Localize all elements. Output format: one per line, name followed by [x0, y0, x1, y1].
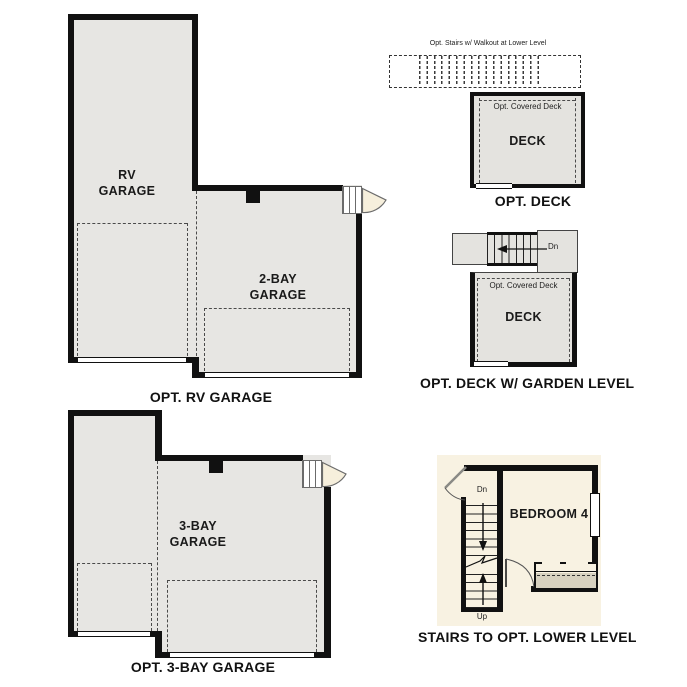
two-bay-garage-label: 2-BAY GARAGE [238, 272, 318, 303]
wall [464, 465, 598, 471]
plan-caption: OPT. DECK W/ GARDEN LEVEL [420, 375, 620, 391]
rv-parking-dashed [77, 223, 78, 361]
covered-deck-dashed [479, 100, 575, 101]
entry-steps [302, 460, 322, 488]
parking-dashed [167, 580, 316, 581]
wall [192, 185, 343, 191]
rv-parking-dashed [77, 223, 187, 224]
wall [68, 14, 198, 20]
closet-rod-dashed [537, 575, 595, 576]
bay2-parking-dashed [349, 308, 350, 376]
covered-deck-label: Opt. Covered Deck [470, 282, 577, 291]
garage-door [78, 357, 186, 363]
deck-door [474, 361, 508, 367]
optional-stairs [389, 55, 581, 88]
garage-floor [68, 410, 162, 637]
garage-door [170, 652, 314, 658]
closet-door-gap [542, 562, 560, 565]
bedroom-label: BEDROOM 4 [499, 507, 599, 523]
covered-deck-dashed [477, 278, 569, 279]
parking-dashed [316, 580, 317, 652]
closet [534, 562, 598, 590]
wall [68, 631, 78, 637]
closet-shelf [536, 571, 596, 572]
covered-deck-label: Opt. Covered Deck [470, 103, 585, 112]
wall [356, 213, 362, 378]
wall [192, 357, 199, 378]
dn-label: Dn [548, 243, 568, 252]
wall [162, 652, 170, 658]
entry-door-swing-icon [362, 186, 389, 215]
parking-dashed [77, 563, 151, 564]
plan-caption: OPT. DECK [453, 193, 613, 209]
stair-landing [452, 233, 488, 265]
plan-caption: STAIRS TO OPT. LOWER LEVEL [418, 629, 618, 645]
garage-door [205, 372, 349, 378]
floorplan-options-sheet: RV GARAGE 2-BAY GARAGE OPT. RV GARAGE Op… [0, 0, 687, 687]
wall [324, 487, 331, 658]
column [246, 191, 260, 203]
wall [68, 410, 162, 416]
three-bay-garage-label: 3-BAY GARAGE [158, 519, 238, 550]
stairs-note: Opt. Stairs w/ Walkout at Lower Level [378, 40, 598, 48]
up-label: Up [464, 613, 500, 622]
dn-label: Dn [464, 486, 500, 495]
wall [155, 631, 162, 658]
wall [68, 357, 78, 363]
deck-door [476, 183, 512, 189]
parking-dashed [151, 563, 152, 631]
plan-caption: OPT. 3-BAY GARAGE [123, 659, 283, 675]
down-arrow-icon [478, 502, 488, 552]
entry-steps [342, 186, 362, 214]
wall [155, 455, 303, 461]
parking-dashed [77, 563, 78, 631]
wall [314, 652, 331, 658]
entry-door-arc-icon [439, 464, 469, 502]
rv-parking-dashed [187, 223, 188, 361]
bedroom-door-arc-icon [501, 556, 535, 588]
wall [68, 410, 74, 637]
wall [68, 14, 74, 363]
wall [155, 410, 162, 461]
bay2-parking-dashed [204, 308, 350, 309]
optional-wall-dashed [196, 191, 197, 361]
garage-door [78, 631, 150, 637]
plan-caption: OPT. RV GARAGE [131, 389, 291, 405]
parking-dashed [167, 580, 168, 652]
up-arrow-icon [478, 572, 488, 606]
column [209, 461, 223, 473]
rv-garage-label: RV GARAGE [97, 168, 157, 199]
stair-treads [419, 56, 545, 86]
closet-door-gap [566, 562, 588, 565]
left-arrow-icon [496, 243, 548, 255]
entry-door-swing-icon [322, 460, 349, 489]
deck-label: DECK [470, 310, 577, 326]
wall [192, 14, 198, 191]
bay2-parking-dashed [204, 308, 205, 376]
deck-label: DECK [470, 134, 585, 150]
stair-break-line [466, 555, 497, 569]
